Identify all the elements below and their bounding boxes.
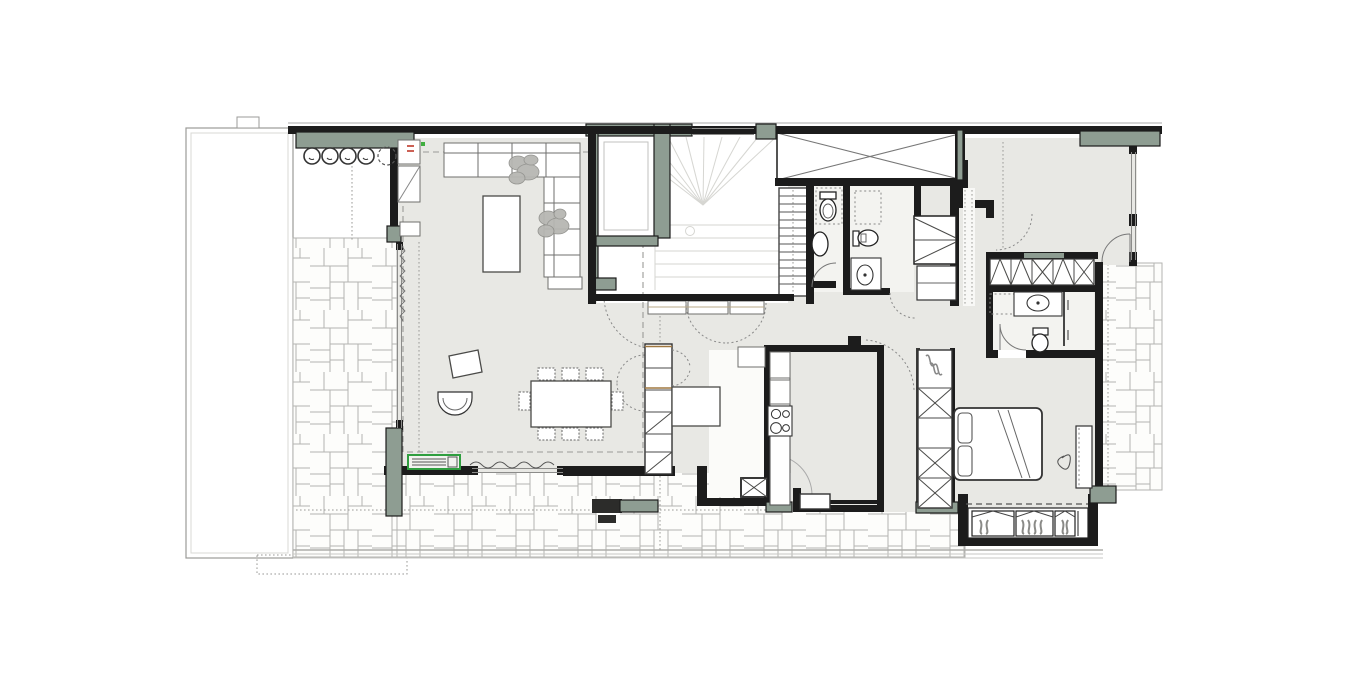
sage-insert-hall xyxy=(957,130,963,180)
kitchen-east-wall xyxy=(877,345,884,512)
ensuite-toilet xyxy=(1032,328,1048,352)
washbasin-1 xyxy=(812,232,828,256)
threshold-dark-unit xyxy=(592,499,622,513)
corridor-strip xyxy=(963,188,975,306)
sage-sill-a xyxy=(620,500,658,512)
step-cabinets xyxy=(648,301,764,314)
terrace-notch xyxy=(237,117,259,128)
bay-window-curtains xyxy=(968,508,1088,538)
floor-plan-canvas xyxy=(0,0,1350,700)
sage-rail-ensuite xyxy=(1024,253,1064,258)
stair-west-wall xyxy=(588,126,596,304)
wardrobe-column xyxy=(918,350,952,508)
planter-box-nw xyxy=(296,132,414,148)
sage-cap-west xyxy=(387,226,401,242)
shaft-void xyxy=(777,133,963,180)
ensuite-vanity xyxy=(1014,292,1062,316)
east-wall xyxy=(1095,262,1103,502)
ensuite-wardrobe-strip xyxy=(990,259,1094,285)
vanity-2 xyxy=(851,258,881,290)
secondary-stair xyxy=(779,188,807,296)
floor-plan-drawing xyxy=(0,0,1350,700)
sage-pier-stair-east xyxy=(756,124,776,139)
plant-2 xyxy=(538,209,569,237)
sage-pillar-sw xyxy=(386,428,402,516)
side-cabinet xyxy=(1076,426,1092,488)
desk xyxy=(672,387,720,426)
sofa-return xyxy=(548,277,582,289)
toilet-1 xyxy=(820,192,836,221)
elevator-east-sage-wall xyxy=(654,124,670,238)
toilet-2 xyxy=(853,230,878,246)
paving-west-block xyxy=(293,238,397,557)
cooktop xyxy=(768,406,792,436)
dining-table xyxy=(531,381,611,427)
elevator-south-sage-wall xyxy=(596,236,658,246)
stair-south-wall xyxy=(588,294,794,301)
pillow-2 xyxy=(958,446,972,476)
garden-bench xyxy=(408,455,460,469)
sage-block-se xyxy=(1090,486,1116,503)
shaft-south-wall xyxy=(775,178,965,186)
coffee-table xyxy=(483,196,520,272)
bath-mid-wall xyxy=(843,184,850,292)
kitchen-door-threshold xyxy=(800,494,830,509)
hall-closet xyxy=(914,216,956,300)
pantry-cabinet xyxy=(738,347,765,367)
north-wall xyxy=(288,126,1162,134)
threshold-dark-small xyxy=(598,515,616,523)
bay-south-wall xyxy=(958,538,1098,546)
pillow-1 xyxy=(958,413,972,443)
double-bed xyxy=(954,408,1042,480)
green-accent-mark xyxy=(421,142,425,146)
paving-east-strip xyxy=(1100,263,1162,490)
planter-box-ne xyxy=(1080,131,1160,146)
kitchen-north-wall xyxy=(764,345,884,352)
terrace-pots xyxy=(304,147,396,165)
